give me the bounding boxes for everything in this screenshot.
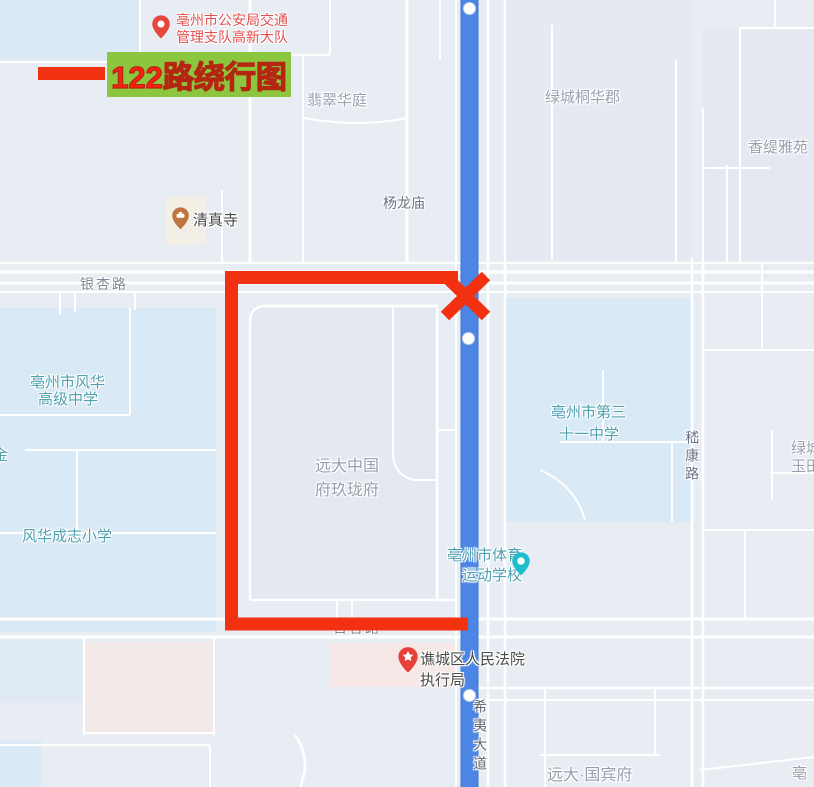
legend-title: 122路绕行图: [111, 52, 287, 97]
road-label-jikang: 嵇康路: [684, 430, 700, 484]
bus-stop-dot[interactable]: [464, 690, 475, 701]
poi-bozhou-partial-label: 亳: [792, 765, 807, 782]
poi-chanti-garden-label: 香缇雅苑: [748, 139, 808, 156]
poi-mosque-label[interactable]: 清真寺: [193, 212, 238, 229]
poi-greentown-tonghua-label: 绿城桐华郡: [545, 89, 620, 106]
poi-chengzhi-primary-label: 风华成志小学: [22, 528, 112, 545]
road-label-yinxing: 银杏路: [80, 276, 128, 292]
bus-stop-dot[interactable]: [464, 3, 475, 14]
map-canvas[interactable]: 亳州市公安局交通 管理支队高新大队 翡翠华庭 绿城桐华郡 香缇雅苑 杨龙庙 清真…: [0, 0, 814, 787]
legend-box: 122路绕行图: [107, 52, 291, 97]
poi-police-label[interactable]: 亳州市公安局交通 管理支队高新大队: [176, 12, 288, 46]
mosque-pin-icon[interactable]: [171, 206, 190, 236]
poi-greentown-partial-label: 绿城 玉田: [791, 440, 814, 476]
poi-jin-partial-label: 金: [0, 447, 8, 464]
court-pin-icon[interactable]: [397, 646, 419, 679]
poi-no31-middle-label: 亳州市第三 十一中学: [551, 402, 626, 446]
police-pin-icon[interactable]: [151, 14, 171, 45]
poi-court-label[interactable]: 谯城区人民法院 执行局: [420, 649, 525, 691]
legend-route-swatch: [38, 67, 105, 80]
road-label-xiyi: 希夷大道: [472, 699, 488, 775]
poi-yuanda-mansion-label: 远大中国 府玖珑府: [315, 455, 379, 503]
road-label-baihe: 百合路: [333, 620, 381, 636]
poi-emerald-court-label: 翡翠华庭: [307, 92, 367, 109]
poi-fenghua-high-label: 亳州市风华 高级中学: [30, 374, 105, 409]
poi-guobin-mansion-label: 远大·国宾府: [547, 767, 632, 785]
bus-stop-dot[interactable]: [463, 333, 474, 344]
poi-yanglong-temple-label: 杨龙庙: [383, 195, 425, 211]
sports-school-pin-icon[interactable]: [511, 551, 531, 582]
